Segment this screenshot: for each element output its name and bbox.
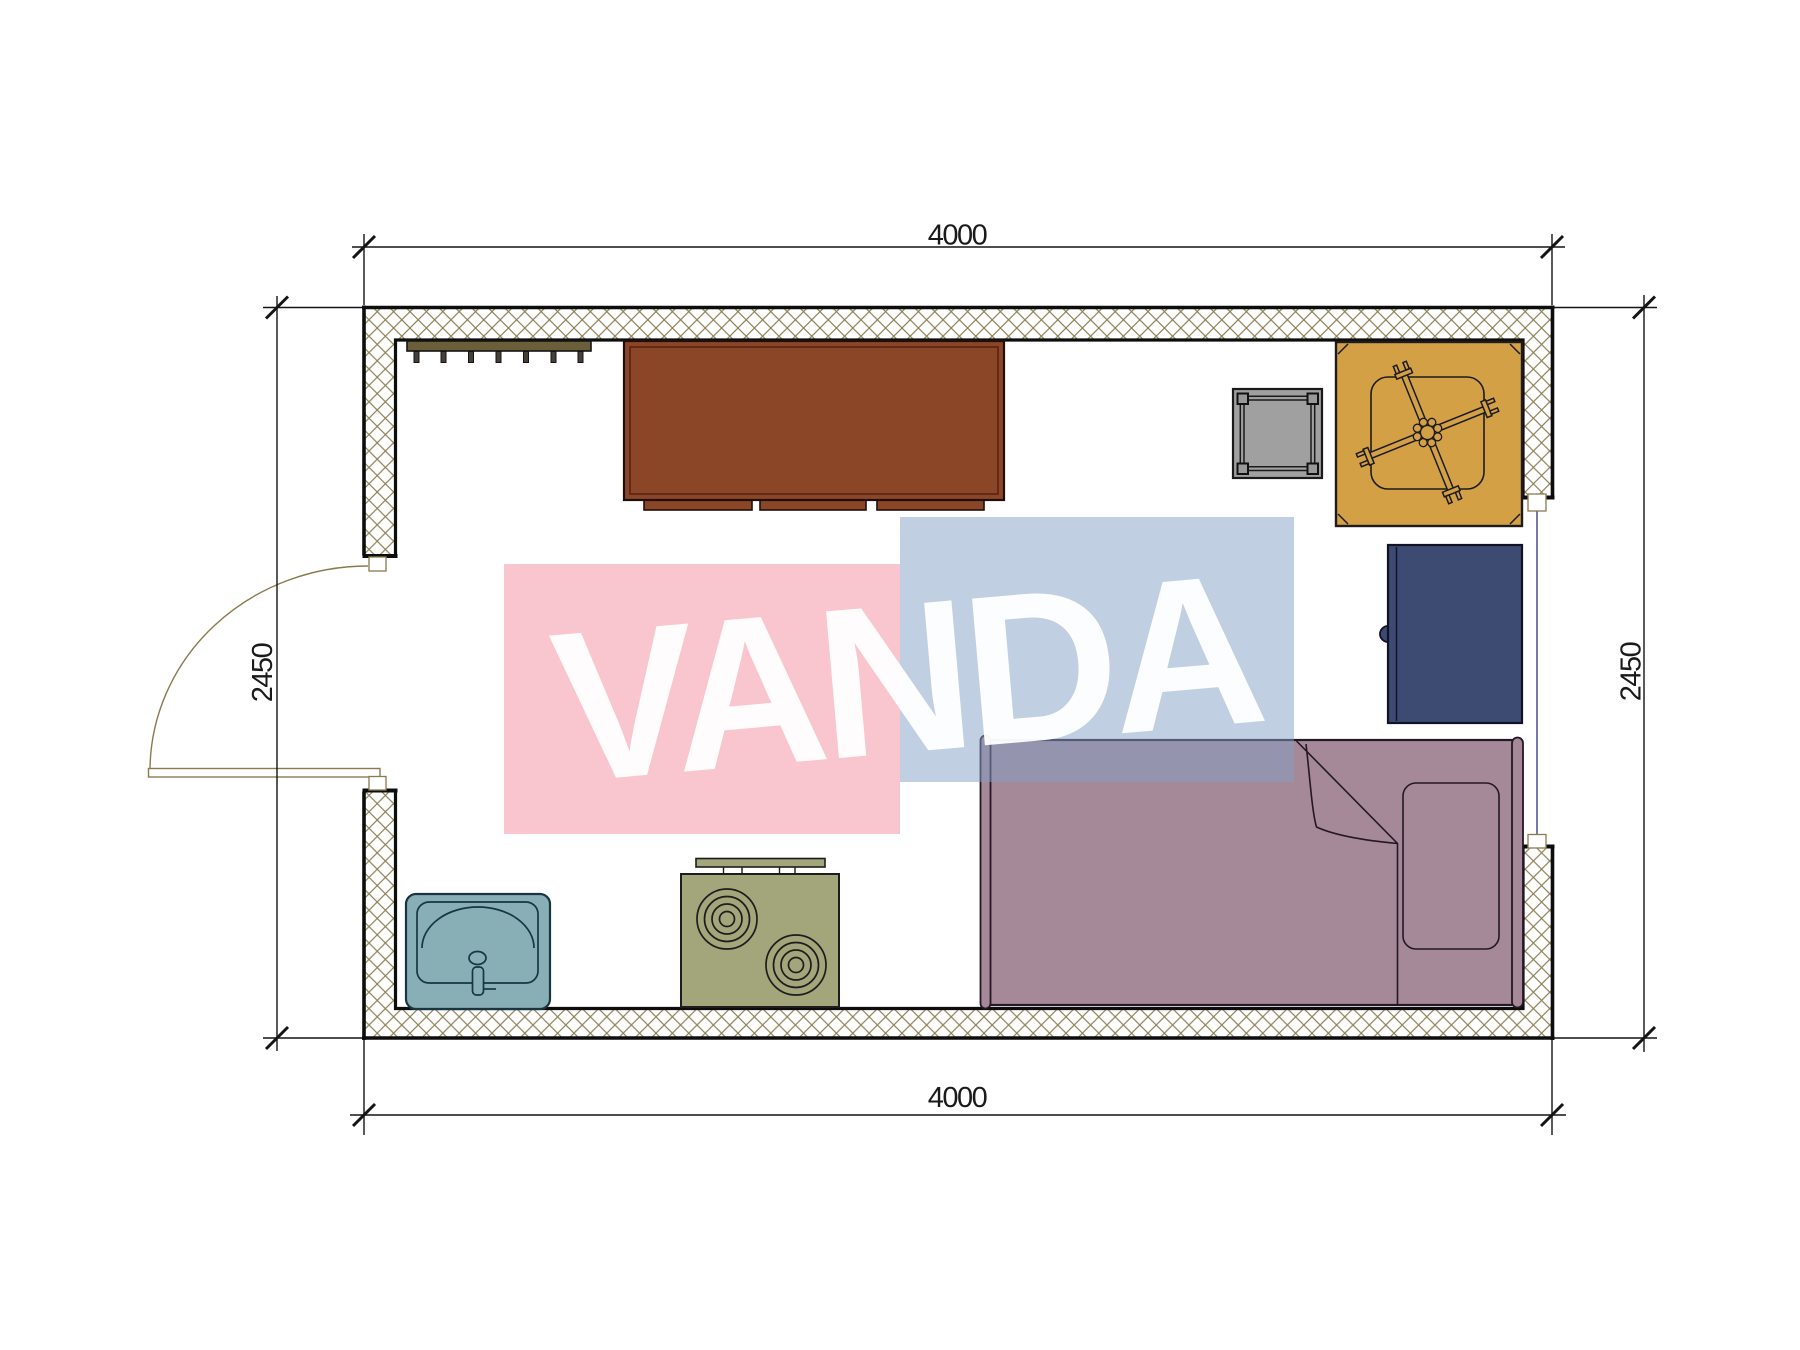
- svg-text:2450: 2450: [1616, 642, 1648, 701]
- svg-text:4000: 4000: [928, 1082, 987, 1114]
- svg-text:4000: 4000: [928, 220, 987, 252]
- svg-text:2450: 2450: [247, 643, 279, 702]
